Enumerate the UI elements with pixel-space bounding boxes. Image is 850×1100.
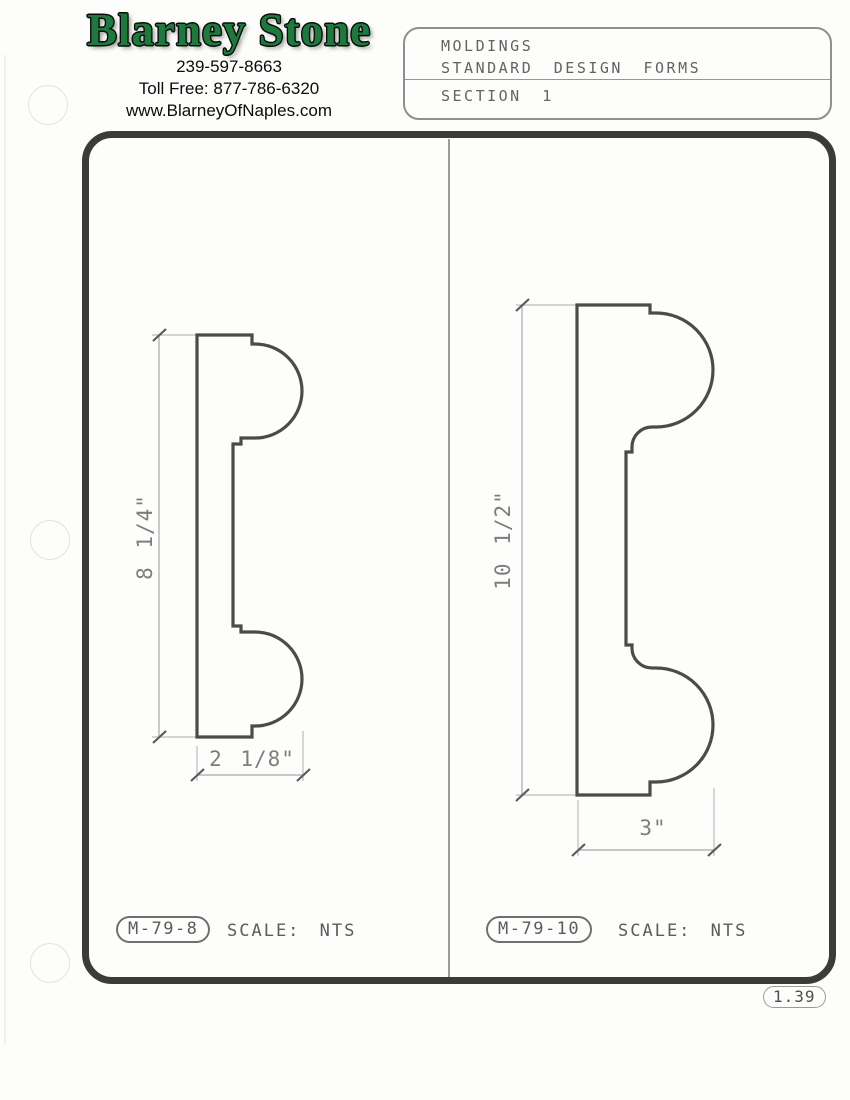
- drawing-id-chip-m-79-10: M-79-10: [486, 916, 592, 943]
- height-extension-lines: [516, 305, 576, 795]
- molding-profile-m-79-10: [577, 305, 713, 795]
- height-dimension-label-m-79-10: 10 1/2": [491, 490, 515, 590]
- height-dimension-label-m-79-8: 8 1/4": [133, 494, 157, 580]
- width-dimension-label-m-79-8: 2 1/8": [209, 747, 295, 771]
- scale-note-m-79-10: SCALE: NTS: [618, 921, 747, 941]
- scale-note-m-79-8: SCALE: NTS: [227, 921, 356, 941]
- width-dimension-label-m-79-10: 3": [639, 816, 666, 840]
- page-number: 1.39: [763, 986, 826, 1008]
- molding-profile-m-79-8: [197, 335, 302, 737]
- catalog-page: { "company": { "name": "Blarney Stone", …: [0, 0, 850, 1100]
- drawing-id-chip-m-79-8: M-79-8: [116, 916, 210, 943]
